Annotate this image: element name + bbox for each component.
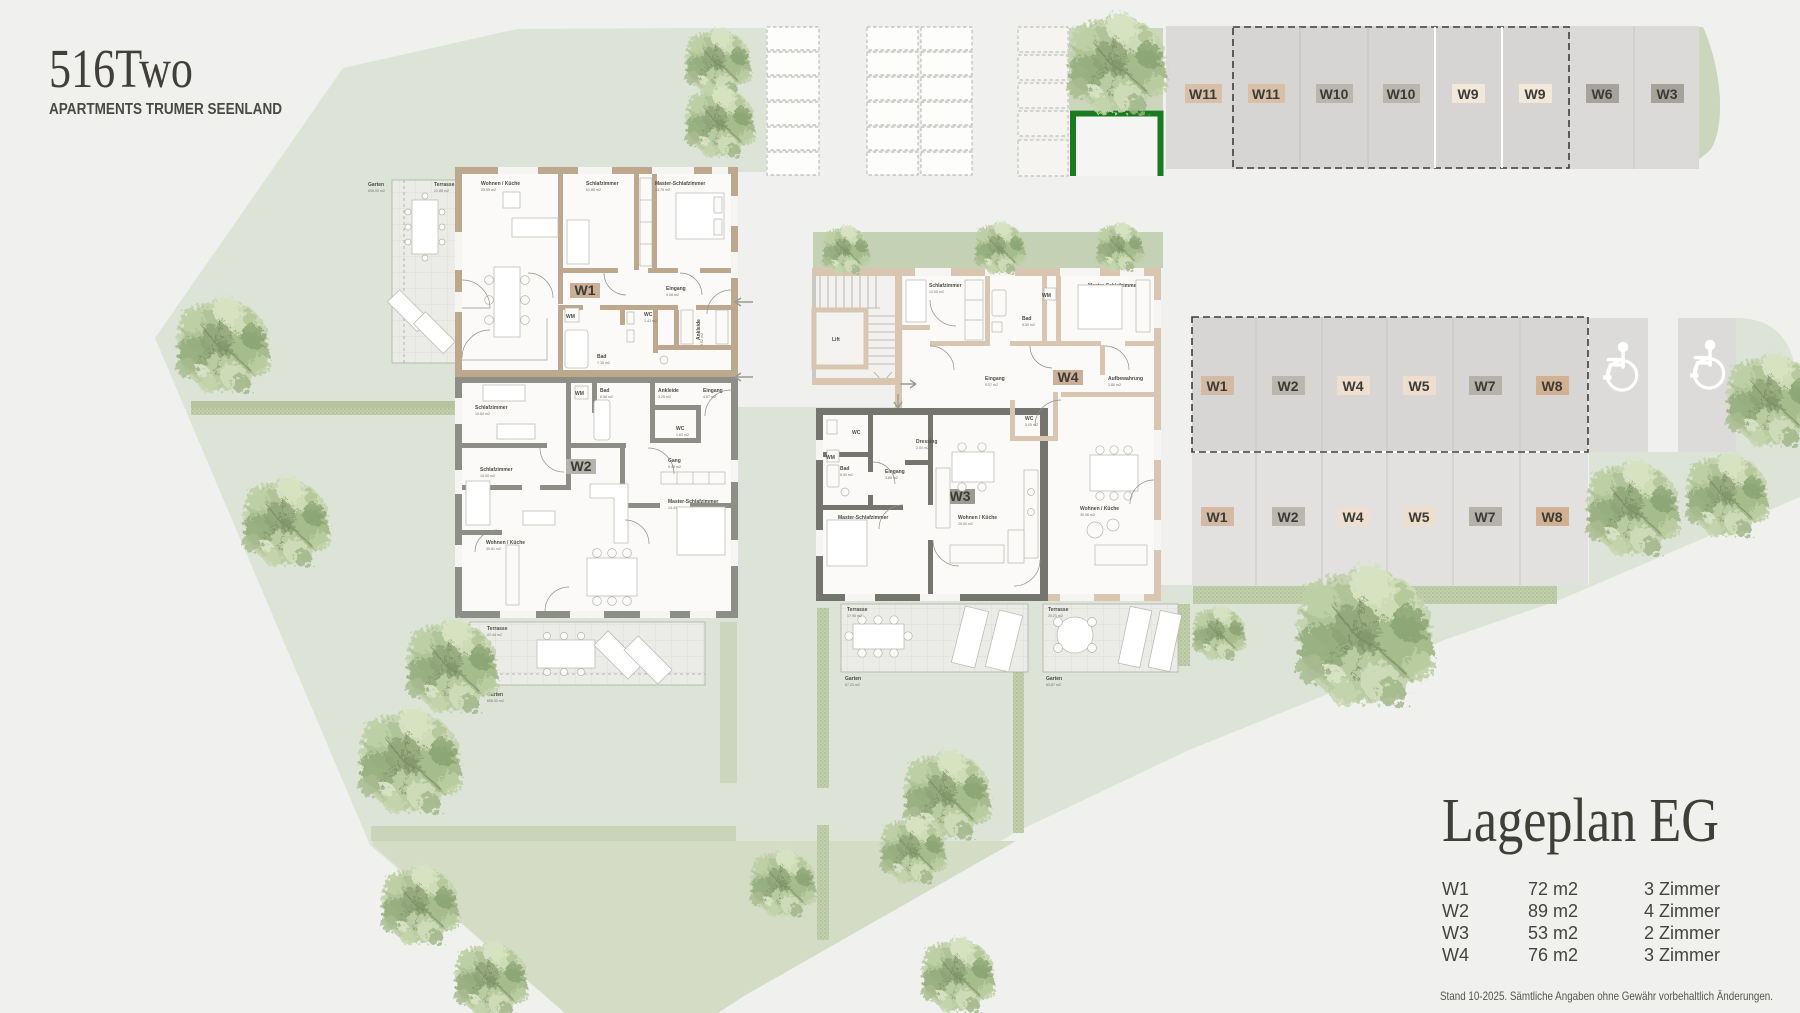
svg-text:Bad: Bad <box>597 354 606 360</box>
svg-text:67.23 m2: 67.23 m2 <box>845 683 860 687</box>
svg-text:W1: W1 <box>1442 879 1469 899</box>
svg-text:Stand 10-2025. Sämtliche Angab: Stand 10-2025. Sämtliche Angaben ohne Ge… <box>1440 989 1773 1003</box>
svg-text:7.16 m2: 7.16 m2 <box>597 361 610 365</box>
svg-text:Terrasse: Terrasse <box>1048 607 1069 613</box>
svg-text:25.59 m2: 25.59 m2 <box>481 188 496 192</box>
svg-text:Bad: Bad <box>840 466 849 472</box>
svg-text:WC: WC <box>644 312 653 318</box>
svg-text:17.95 m2: 17.95 m2 <box>847 614 862 618</box>
svg-text:W8: W8 <box>1542 378 1563 394</box>
svg-text:WC: WC <box>1025 416 1034 422</box>
svg-text:10.00 m2: 10.00 m2 <box>480 474 495 478</box>
svg-text:W7: W7 <box>1475 378 1496 394</box>
svg-text:W8: W8 <box>1542 509 1563 525</box>
svg-text:W1: W1 <box>575 282 596 298</box>
svg-text:W1: W1 <box>1207 509 1228 525</box>
svg-text:Aufbewahrung: Aufbewahrung <box>1108 376 1143 382</box>
svg-text:1.43 m2: 1.43 m2 <box>644 319 657 323</box>
svg-text:W6: W6 <box>1592 86 1613 102</box>
svg-text:Wohnen / Küche: Wohnen / Küche <box>958 515 997 521</box>
svg-text:W5: W5 <box>1409 378 1430 394</box>
svg-text:53 m2: 53 m2 <box>1528 923 1578 943</box>
svg-text:4.87 m2: 4.87 m2 <box>703 395 716 399</box>
svg-text:Garten: Garten <box>845 676 861 682</box>
svg-text:Ankleide: Ankleide <box>658 388 679 394</box>
svg-text:W2: W2 <box>1442 901 1469 921</box>
svg-text:WM: WM <box>566 314 575 320</box>
svg-text:3 Zimmer: 3 Zimmer <box>1644 945 1720 965</box>
svg-text:Bad: Bad <box>600 388 609 394</box>
svg-text:W2: W2 <box>571 458 592 474</box>
svg-text:Terrasse: Terrasse <box>847 607 868 613</box>
svg-text:Master-Schlafzimmer: Master-Schlafzimmer <box>668 499 718 505</box>
svg-text:Schlafzimmer: Schlafzimmer <box>480 467 513 473</box>
svg-text:3.25 m2: 3.25 m2 <box>658 395 671 399</box>
svg-text:Terrasse: Terrasse <box>434 182 455 188</box>
svg-text:WC: WC <box>676 426 685 432</box>
svg-text:4 Zimmer: 4 Zimmer <box>1644 901 1720 921</box>
svg-text:89 m2: 89 m2 <box>1528 901 1578 921</box>
svg-text:Schlafzimmer: Schlafzimmer <box>475 405 508 411</box>
svg-text:3.05 m2: 3.05 m2 <box>1025 423 1038 427</box>
svg-text:Schlafzimmer: Schlafzimmer <box>929 283 962 289</box>
svg-text:W9: W9 <box>1525 86 1546 102</box>
svg-text:Lageplan EG: Lageplan EG <box>1442 787 1719 855</box>
svg-text:2.00 m2: 2.00 m2 <box>916 446 929 450</box>
svg-text:3.02 m2: 3.02 m2 <box>700 333 704 346</box>
svg-text:61.85 m2: 61.85 m2 <box>586 188 601 192</box>
svg-text:Schlafzimmer: Schlafzimmer <box>586 181 619 187</box>
svg-text:63.87 m2: 63.87 m2 <box>1046 683 1061 687</box>
svg-text:Wohnen / Küche: Wohnen / Küche <box>1080 506 1119 512</box>
svg-text:30.61 m2: 30.61 m2 <box>486 547 501 551</box>
svg-text:W1: W1 <box>1207 378 1228 394</box>
svg-text:29.00 m2: 29.00 m2 <box>958 522 973 526</box>
svg-text:W7: W7 <box>1475 509 1496 525</box>
svg-text:W3: W3 <box>1657 86 1678 102</box>
svg-text:516Two: 516Two <box>49 38 193 99</box>
svg-text:Master-Schlafzimmer: Master-Schlafzimmer <box>655 181 705 187</box>
svg-text:1.63 m2: 1.63 m2 <box>676 433 689 437</box>
svg-text:W3: W3 <box>1442 923 1469 943</box>
svg-text:WM: WM <box>575 391 584 397</box>
svg-text:W4: W4 <box>1058 369 1079 385</box>
svg-text:2.80 m2: 2.80 m2 <box>1108 383 1121 387</box>
svg-text:30.06 m2: 30.06 m2 <box>1080 513 1095 517</box>
svg-text:72 m2: 72 m2 <box>1528 879 1578 899</box>
svg-text:Garten: Garten <box>368 182 384 188</box>
svg-text:3 Zimmer: 3 Zimmer <box>1644 879 1720 899</box>
svg-text:608.00 m2: 608.00 m2 <box>368 189 385 193</box>
svg-text:Eingang: Eingang <box>885 469 905 475</box>
svg-text:W4: W4 <box>1343 509 1364 525</box>
svg-text:Dressing: Dressing <box>916 439 937 445</box>
svg-text:WC: WC <box>852 430 861 436</box>
svg-text:21.85 m2: 21.85 m2 <box>434 189 449 193</box>
svg-text:20.21 m2: 20.21 m2 <box>1048 614 1063 618</box>
svg-text:22.44 m2: 22.44 m2 <box>487 633 502 637</box>
svg-text:W4: W4 <box>1442 945 1469 965</box>
svg-text:9.49 m2: 9.49 m2 <box>668 465 681 469</box>
svg-text:Bad: Bad <box>1022 316 1031 322</box>
svg-text:Wohnen / Küche: Wohnen / Küche <box>481 181 520 187</box>
svg-text:12.00 m2: 12.00 m2 <box>929 290 944 294</box>
svg-text:W11: W11 <box>1189 86 1217 102</box>
svg-text:W9: W9 <box>1458 86 1479 102</box>
svg-text:9.08 m2: 9.08 m2 <box>666 293 679 297</box>
svg-text:W2: W2 <box>1278 509 1299 525</box>
svg-text:606.00 m2: 606.00 m2 <box>487 699 504 703</box>
svg-text:3.80 m2: 3.80 m2 <box>885 476 898 480</box>
svg-text:APARTMENTS TRUMER SEENLAND: APARTMENTS TRUMER SEENLAND <box>49 101 282 118</box>
svg-text:Gang: Gang <box>668 458 681 464</box>
svg-text:5.00 m2: 5.00 m2 <box>840 473 853 477</box>
svg-text:W10: W10 <box>1387 86 1416 102</box>
svg-text:10.84 m2: 10.84 m2 <box>475 412 490 416</box>
svg-text:WM: WM <box>1042 293 1051 299</box>
svg-text:5.30 m2: 5.30 m2 <box>1022 323 1035 327</box>
svg-text:9.07 m2: 9.07 m2 <box>985 383 998 387</box>
svg-text:Garten: Garten <box>1046 676 1062 682</box>
svg-text:13.79 m2: 13.79 m2 <box>655 188 670 192</box>
svg-text:Eingang: Eingang <box>703 388 723 394</box>
svg-text:W5: W5 <box>1409 509 1430 525</box>
svg-text:6.58 m2: 6.58 m2 <box>600 395 613 399</box>
svg-text:Eingang: Eingang <box>666 286 686 292</box>
svg-text:W4: W4 <box>1343 378 1364 394</box>
svg-text:W2: W2 <box>1278 378 1299 394</box>
svg-text:Wohnen / Küche: Wohnen / Küche <box>486 540 525 546</box>
svg-text:Terrasse: Terrasse <box>487 626 508 632</box>
svg-text:WM: WM <box>826 455 835 461</box>
svg-text:Eingang: Eingang <box>985 376 1005 382</box>
svg-text:Lift: Lift <box>832 337 840 343</box>
svg-text:2 Zimmer: 2 Zimmer <box>1644 923 1720 943</box>
svg-text:W11: W11 <box>1252 86 1280 102</box>
svg-text:76 m2: 76 m2 <box>1528 945 1578 965</box>
svg-text:W10: W10 <box>1320 86 1349 102</box>
